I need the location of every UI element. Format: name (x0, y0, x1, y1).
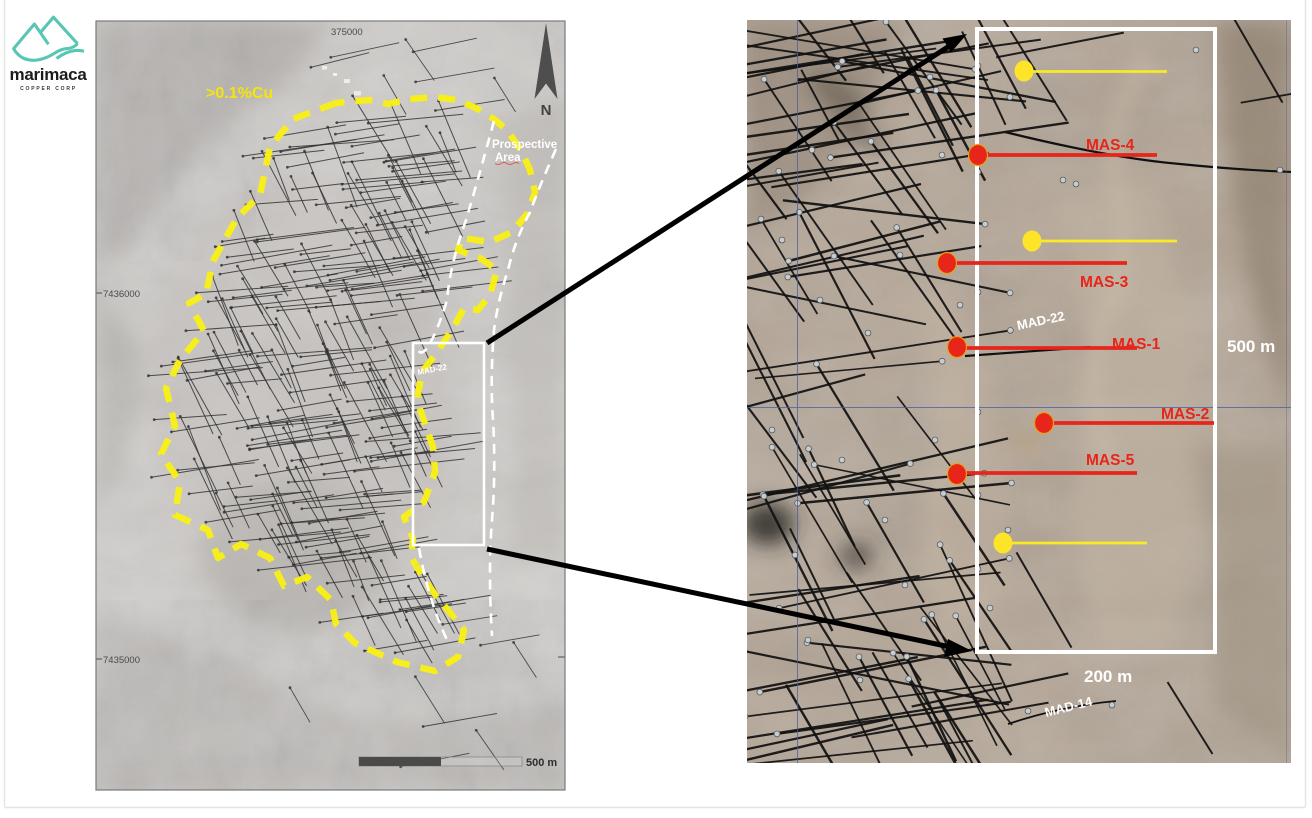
svg-text:7435000: 7435000 (103, 655, 140, 666)
svg-text:MAS-2: MAS-2 (1161, 406, 1209, 423)
svg-text:MAS-5: MAS-5 (1086, 452, 1135, 469)
svg-text:COPPER CORP: COPPER CORP (20, 86, 77, 92)
svg-text:Prospective: Prospective (492, 139, 557, 151)
svg-text:500 m: 500 m (526, 757, 557, 769)
svg-text:>0.1%Cu: >0.1%Cu (206, 85, 273, 102)
svg-text:200 m: 200 m (1084, 667, 1132, 686)
svg-text:MAS-1: MAS-1 (1112, 336, 1161, 353)
svg-text:MAS-4: MAS-4 (1086, 137, 1135, 154)
svg-text:500 m: 500 m (1227, 337, 1275, 356)
svg-text:N: N (541, 102, 552, 119)
svg-text:MAS-3: MAS-3 (1080, 274, 1129, 291)
svg-text:marimaca: marimaca (10, 65, 88, 84)
svg-text:7436000: 7436000 (103, 289, 140, 300)
svg-text:375000: 375000 (331, 27, 363, 38)
